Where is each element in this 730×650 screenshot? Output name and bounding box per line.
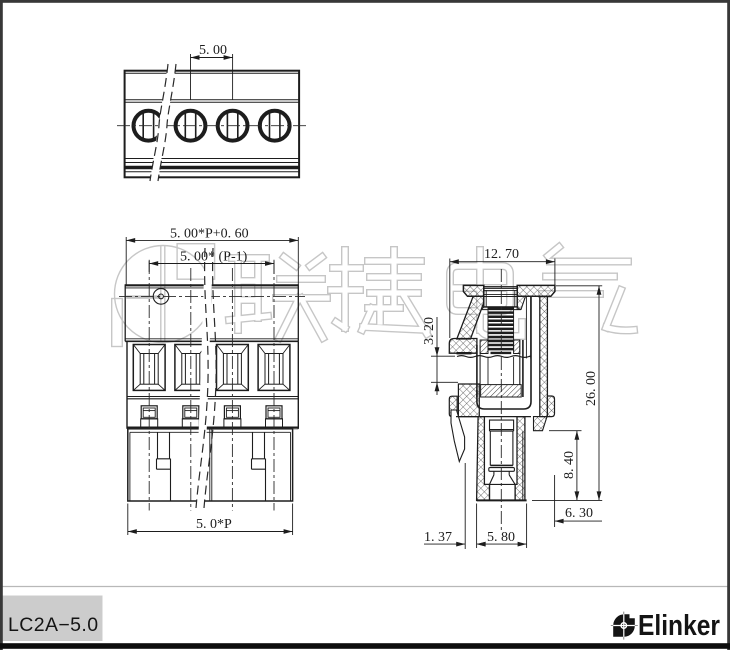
svg-text:12. 70: 12. 70: [484, 247, 519, 262]
svg-text:5. 00* (P-1): 5. 00* (P-1): [180, 250, 248, 265]
svg-text:5. 0*P: 5. 0*P: [196, 517, 232, 532]
svg-text:Elinker: Elinker: [638, 610, 720, 642]
svg-text:3. 20: 3. 20: [422, 317, 437, 345]
svg-text:LC2A−5.0: LC2A−5.0: [8, 614, 98, 636]
svg-text:8. 40: 8. 40: [562, 451, 577, 479]
svg-text:5. 00*P+0. 60: 5. 00*P+0. 60: [170, 227, 249, 242]
svg-text:6. 30: 6. 30: [565, 506, 593, 521]
svg-text:5. 80: 5. 80: [487, 530, 515, 545]
svg-text:5. 00: 5. 00: [199, 43, 227, 58]
svg-text:1. 37: 1. 37: [424, 530, 452, 545]
svg-text:26. 00: 26. 00: [584, 371, 599, 406]
